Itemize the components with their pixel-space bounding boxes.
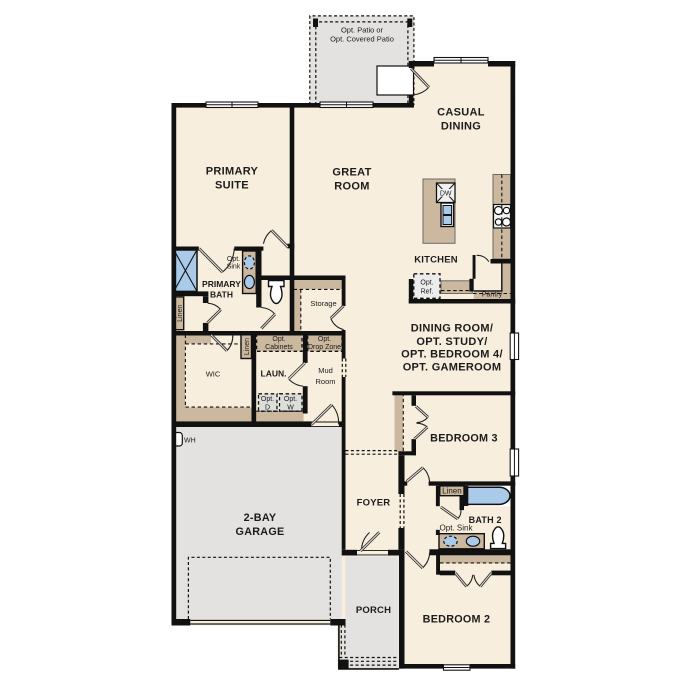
svg-text:WH: WH [184,438,196,445]
svg-text:OPT. STUDY/: OPT. STUDY/ [416,336,487,348]
svg-text:Sink: Sink [227,264,241,271]
svg-text:DINING ROOM/: DINING ROOM/ [411,323,493,335]
svg-text:LAUN.: LAUN. [261,369,287,379]
svg-text:Opt. Covered Patio: Opt. Covered Patio [330,35,394,44]
svg-text:PORCH: PORCH [356,605,391,616]
svg-text:BEDROOM 2: BEDROOM 2 [423,613,491,625]
svg-text:DINING: DINING [441,121,481,133]
svg-text:Mud: Mud [318,366,333,375]
svg-text:Opt. Patio or: Opt. Patio or [341,26,384,35]
svg-text:Opt.: Opt. [420,280,433,287]
svg-text:2-BAY: 2-BAY [244,512,277,524]
svg-text:Pantry: Pantry [482,292,503,299]
svg-text:Room: Room [315,377,335,386]
svg-text:BATH: BATH [210,290,233,300]
svg-text:PRIMARY: PRIMARY [202,279,241,289]
svg-text:Opt.: Opt. [227,256,240,263]
svg-text:CASUAL: CASUAL [437,107,485,119]
svg-text:Opt.: Opt. [272,336,285,343]
svg-text:ROOM: ROOM [334,180,369,192]
svg-text:Opt.: Opt. [318,336,331,343]
svg-text:W: W [287,404,294,411]
svg-text:GREAT: GREAT [332,167,371,179]
svg-text:Linen: Linen [177,305,184,322]
svg-text:Linen: Linen [442,487,462,496]
svg-text:Opt. Sink: Opt. Sink [440,524,474,533]
svg-text:FOYER: FOYER [357,497,391,508]
svg-text:KITCHEN: KITCHEN [414,255,458,266]
svg-text:D: D [265,404,270,411]
svg-text:Opt.: Opt. [261,396,274,403]
svg-text:Drop Zone: Drop Zone [308,344,341,351]
svg-text:GARAGE: GARAGE [236,526,285,538]
svg-text:BEDROOM 3: BEDROOM 3 [430,432,498,444]
svg-text:Storage: Storage [310,299,336,308]
svg-text:DW: DW [440,190,452,197]
svg-text:PRIMARY: PRIMARY [206,166,259,178]
svg-text:BATH 2: BATH 2 [469,515,502,525]
svg-text:Opt.: Opt. [284,396,297,403]
svg-text:WIC: WIC [206,369,221,378]
svg-text:Cabinets: Cabinets [265,344,293,351]
svg-text:OPT. BEDROOM 4/: OPT. BEDROOM 4/ [401,349,503,361]
svg-text:Ref.: Ref. [421,289,434,296]
svg-text:Linen: Linen [244,338,251,355]
svg-text:SUITE: SUITE [215,180,249,192]
svg-text:OPT. GAMEROOM: OPT. GAMEROOM [403,362,502,374]
